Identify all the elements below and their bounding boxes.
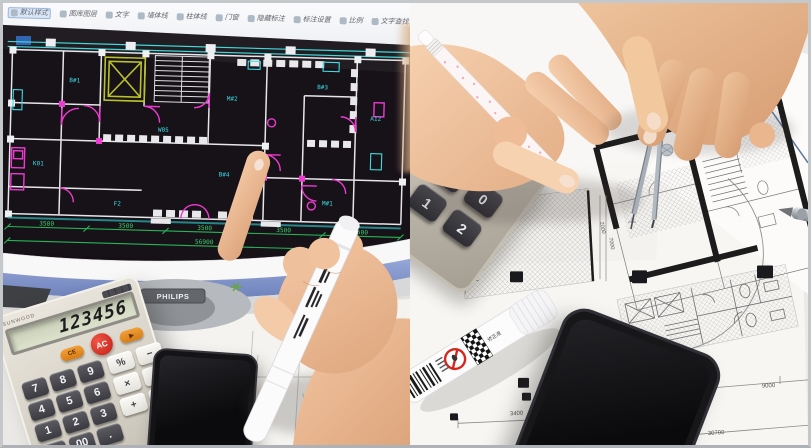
svg-text:30700: 30700: [708, 430, 726, 437]
calc-key: 3: [89, 401, 118, 426]
svg-text:3400: 3400: [510, 411, 524, 418]
svg-text:3500: 3500: [197, 225, 212, 232]
calc-key: 00: [68, 431, 97, 445]
calc-key: ×: [112, 371, 142, 396]
svg-text:M#1: M#1: [322, 200, 333, 207]
svg-text:9000: 9000: [762, 383, 776, 390]
calc-key-ac: AC: [88, 330, 115, 357]
menu-icon: [11, 9, 18, 16]
svg-text:A12: A12: [370, 116, 381, 123]
calc-key: 6: [83, 380, 112, 405]
photo-frame: B#1 W05 M#2 B#3 A12 K01 B#4 M#1 F2: [0, 0, 811, 448]
menu-icon: [177, 13, 184, 20]
menu-item: 比例: [340, 17, 363, 25]
calc-key: 9: [76, 359, 105, 384]
menu-icon: [248, 15, 255, 22]
menu-item: 图库图层: [60, 10, 97, 18]
svg-text:B#3: B#3: [317, 84, 328, 91]
phone-screen: [154, 355, 252, 445]
menu-icon: [106, 12, 113, 19]
calc-key-arrow: ▶: [118, 326, 144, 344]
menu-icon: [216, 14, 223, 21]
menu-icon: [372, 18, 379, 25]
menu-item: 标注设置: [294, 16, 331, 24]
calc-key: 2: [441, 207, 484, 249]
calc-key: +: [119, 392, 149, 417]
calc-key: 4: [27, 397, 56, 422]
calc-key: 5: [55, 389, 84, 414]
menu-item: 文字: [106, 12, 129, 20]
calc-key-ce: CE: [59, 344, 85, 362]
calc-key: 0: [427, 153, 470, 195]
menu-item: 默认样式: [8, 7, 51, 19]
right-photo-blueprint-desk: 2000 7000 9000: [410, 3, 808, 445]
svg-text:3500: 3500: [39, 220, 54, 227]
calc-key: 8: [49, 368, 78, 393]
menu-icon: [60, 10, 67, 17]
menu-item: 墙体线: [138, 12, 168, 20]
svg-text:K01: K01: [33, 160, 44, 167]
calc-key: 1: [410, 182, 449, 224]
svg-text:W05: W05: [158, 127, 169, 134]
calc-key: 7: [21, 376, 50, 401]
svg-text:B#1: B#1: [69, 77, 80, 84]
calc-key: 0: [462, 178, 505, 220]
svg-text:B#4: B#4: [219, 171, 230, 178]
left-photo-cad-workstation: B#1 W05 M#2 B#3 A12 K01 B#4 M#1 F2: [3, 3, 410, 445]
smartphone: [146, 347, 259, 445]
menu-icon: [294, 16, 301, 23]
svg-text:M#2: M#2: [227, 96, 238, 103]
calc-key: 1: [34, 418, 63, 443]
svg-text:PHILIPS: PHILIPS: [157, 292, 190, 301]
menu-item: 柱体线: [177, 13, 207, 21]
svg-text:F2: F2: [114, 200, 122, 207]
menu-icon: [138, 12, 145, 19]
blurred-edge-object: [396, 23, 410, 173]
calc-key: %: [106, 350, 136, 375]
menu-item: 门窗: [216, 14, 239, 22]
menu-icon: [340, 17, 347, 24]
calc-key: 2: [61, 410, 90, 435]
menu-item: 隐藏标注: [248, 15, 285, 23]
svg-text:3500: 3500: [118, 223, 133, 230]
calc-key: .: [96, 422, 125, 445]
